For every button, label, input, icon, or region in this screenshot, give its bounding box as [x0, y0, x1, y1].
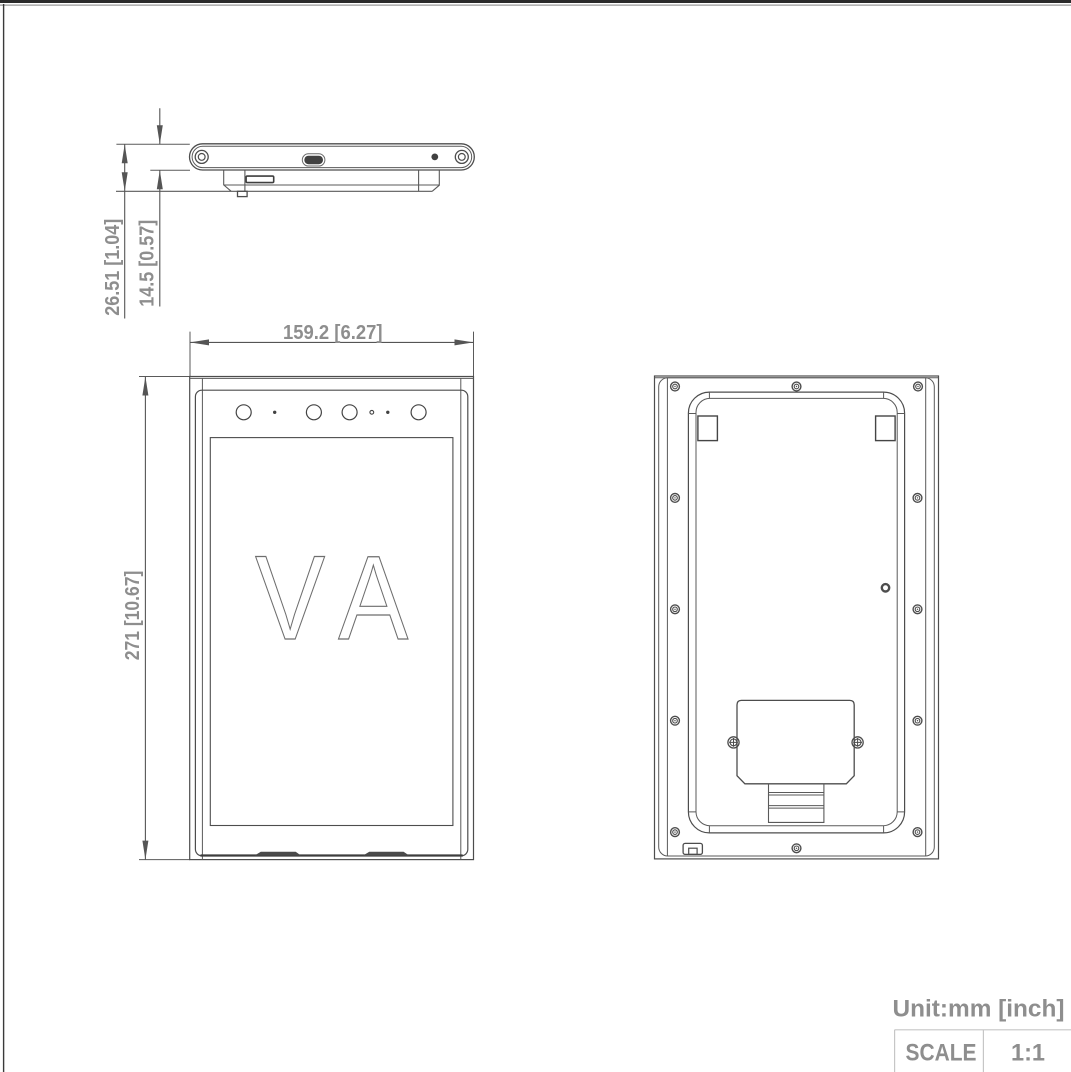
- svg-text:A: A: [338, 531, 408, 665]
- svg-text:Unit:mm [inch]: Unit:mm [inch]: [893, 996, 1065, 1023]
- svg-text:V: V: [255, 531, 325, 665]
- svg-text:159.2 [6.27]: 159.2 [6.27]: [283, 322, 383, 344]
- svg-text:271 [10.67]: 271 [10.67]: [122, 571, 144, 661]
- svg-text:SCALE: SCALE: [906, 1040, 977, 1067]
- svg-text:14.5 [0.57]: 14.5 [0.57]: [136, 220, 158, 307]
- svg-text:1:1: 1:1: [1011, 1040, 1045, 1067]
- svg-text:26.51 [1.04]: 26.51 [1.04]: [102, 219, 124, 316]
